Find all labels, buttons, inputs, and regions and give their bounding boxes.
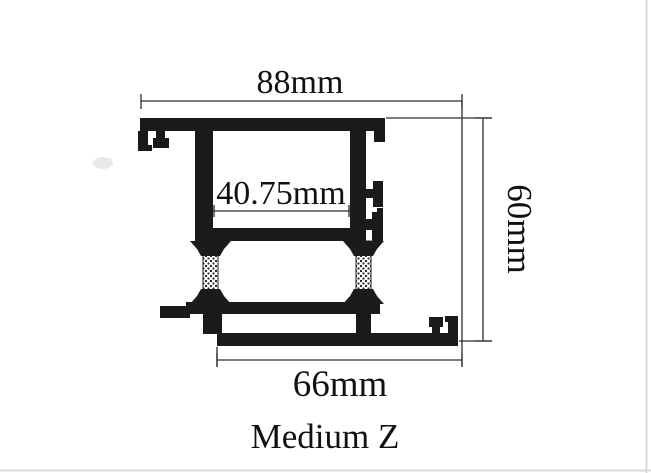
scan-smudge [93,157,113,169]
upper-chamber-left-wall [195,131,213,241]
lower-chamber-right-wall [356,313,371,334]
profile-geometry [138,118,458,346]
dimension-bottom-width: 66mm [217,347,462,405]
bottom-flange [217,333,458,346]
left-clip-tooth [153,131,169,148]
gasket-fin-lower-nub [377,208,383,216]
left-clip-lip [138,131,152,151]
thermal-break-right-bottom-cap [343,289,384,304]
aluminium-profile-cross-section-drawing: 88mm 60mm 40.75mm 66mm Medium Z [0,0,651,473]
thermal-break-right-top-cap [343,241,384,256]
scanned-technical-drawing-page: 88mm 60mm 40.75mm 66mm Medium Z [0,0,651,473]
right-clip-lip [445,316,458,333]
thermal-break-left-top-cap [190,241,231,256]
dimension-inner-width: 40.75mm [213,175,350,217]
right-clip-tooth [429,317,443,333]
dim-label-top-width: 88mm [257,64,344,101]
upper-chamber-bottom-wall [195,228,366,241]
gasket-fin-upper-stem [366,189,374,198]
dim-label-inner-width: 40.75mm [216,175,345,212]
dimension-top-width: 88mm [141,64,462,366]
drawing-title: Medium Z [251,417,400,456]
thermal-break-left-bottom-cap [190,289,231,304]
lower-chamber-top-wall [186,302,380,314]
gasket-fin-upper-cap [373,181,383,207]
dim-label-bottom-width: 66mm [293,364,388,405]
lower-chamber-left-wall [203,313,222,334]
upper-chamber-right-wall [350,118,366,241]
gasket-fin-lower-cap [372,212,383,242]
top-flange-right-lip [374,131,385,142]
lower-chamber-left-tab [160,306,190,318]
dim-label-overall-height: 60mm [500,184,539,273]
top-flange [140,118,385,131]
